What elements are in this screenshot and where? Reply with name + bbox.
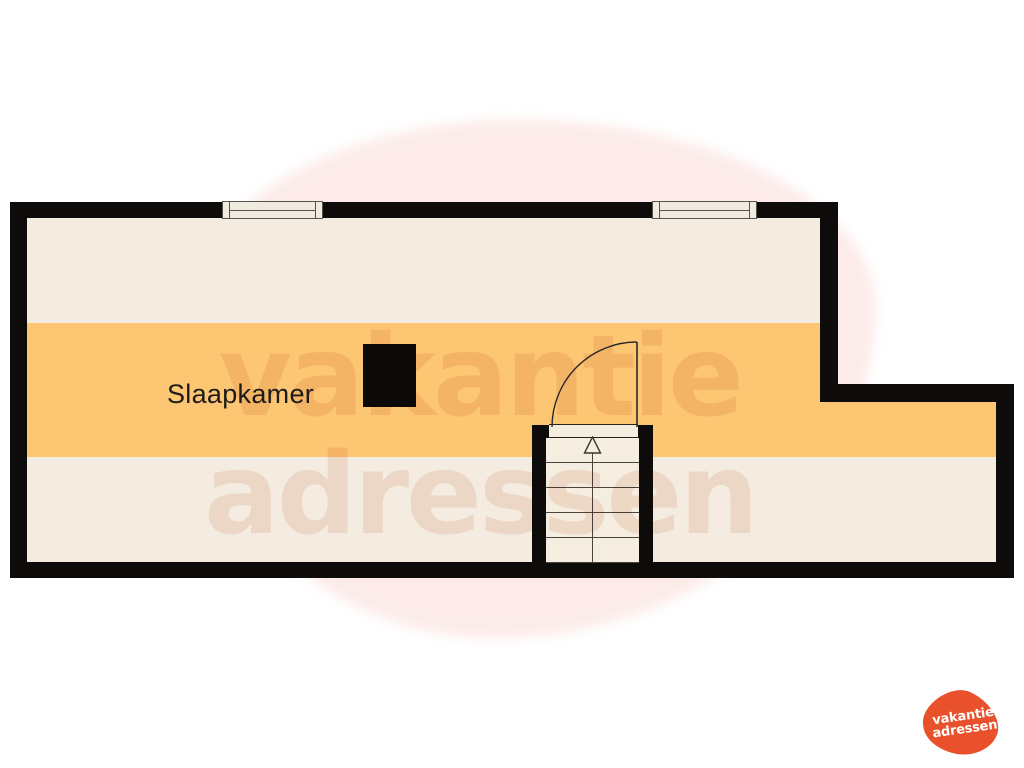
- window-frame-post: [229, 202, 230, 218]
- wall-right-lower: [996, 402, 1014, 578]
- wall-right-upper: [820, 202, 838, 402]
- wall-left: [10, 202, 27, 578]
- wall-bottom: [10, 562, 1014, 578]
- window-glass-line: [660, 210, 749, 211]
- window-frame-post: [749, 202, 750, 218]
- floor-accent-band: [27, 323, 820, 457]
- brand-logo: vakantie adressen: [918, 686, 1010, 762]
- stair-direction-arrow-icon: [576, 436, 610, 456]
- door-swing-arc: [545, 336, 645, 432]
- window-glass-line: [230, 210, 315, 211]
- window: [652, 201, 757, 219]
- floor-accent-band-extension: [820, 402, 996, 457]
- floorplan-canvas: Slaapkamer vakantie adressen vakantie ad…: [0, 0, 1024, 768]
- window: [222, 201, 323, 219]
- window-frame-post: [659, 202, 660, 218]
- stair-center-line: [592, 452, 594, 563]
- staircase: [546, 438, 639, 563]
- stair-wall-right: [639, 425, 653, 578]
- stair-wall-left: [532, 425, 546, 578]
- chimney-block: [363, 344, 416, 407]
- window-frame-post: [315, 202, 316, 218]
- wall-step: [820, 384, 1014, 402]
- room-label: Slaapkamer: [167, 379, 314, 410]
